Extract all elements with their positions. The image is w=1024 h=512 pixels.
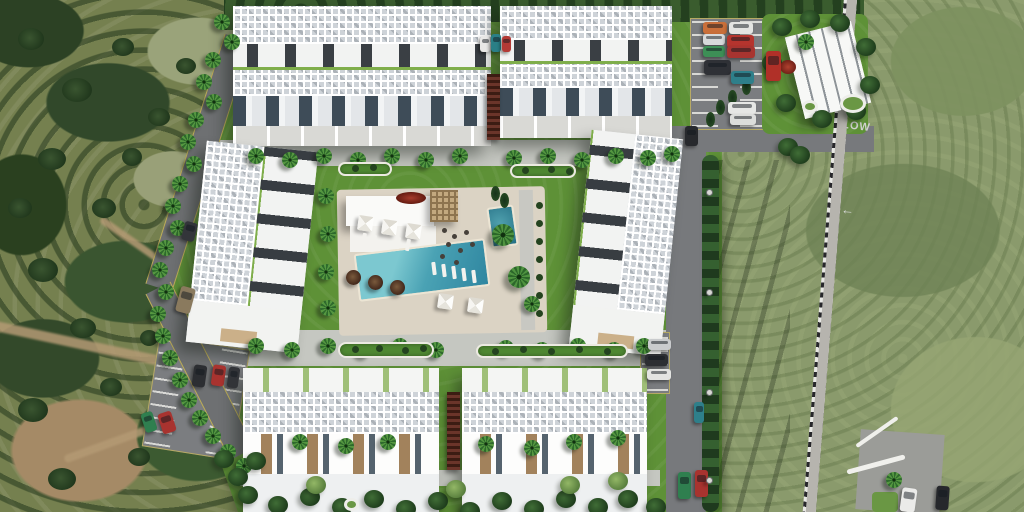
tree — [776, 94, 796, 112]
car — [480, 36, 490, 52]
building-west-block — [186, 141, 319, 354]
tree — [860, 76, 880, 94]
palm — [640, 150, 656, 166]
tree — [772, 18, 792, 36]
palm — [150, 306, 166, 322]
palm — [214, 14, 230, 30]
car — [648, 339, 671, 350]
palm — [172, 176, 188, 192]
car — [766, 51, 781, 81]
tree — [646, 498, 666, 512]
palm — [452, 148, 468, 164]
bush — [536, 310, 543, 317]
scrub — [28, 258, 58, 282]
palm — [248, 148, 264, 164]
dot — [442, 228, 447, 233]
bush — [352, 346, 359, 353]
scrub — [92, 198, 116, 218]
roof-pergola-grid — [500, 64, 672, 88]
car — [703, 34, 725, 45]
scrub — [18, 28, 44, 50]
palm — [172, 372, 188, 388]
scrub — [148, 108, 170, 126]
bush — [376, 345, 383, 352]
dot — [470, 242, 475, 247]
umb-sq — [437, 293, 454, 310]
roof-pergola-grid — [243, 392, 439, 434]
lamp — [707, 290, 712, 295]
cypress-hedge — [702, 155, 719, 512]
palm — [610, 430, 626, 446]
palm — [320, 226, 336, 242]
scrub — [8, 198, 32, 218]
car — [731, 71, 754, 84]
dot — [454, 260, 459, 265]
roof-pergola-grid — [462, 392, 647, 434]
umb-rd — [390, 280, 405, 295]
dot — [464, 230, 469, 235]
roof-terraces — [243, 368, 439, 392]
bush — [352, 165, 359, 172]
palm — [188, 112, 204, 128]
dot — [446, 242, 451, 247]
ground-patios — [233, 126, 491, 146]
palm — [165, 198, 181, 214]
tree — [396, 500, 416, 512]
palm — [316, 148, 332, 164]
tree — [618, 490, 638, 508]
scrub — [100, 378, 122, 396]
palm — [566, 434, 582, 450]
palm — [318, 188, 334, 204]
car — [899, 487, 917, 512]
tree — [790, 146, 810, 164]
palm — [574, 152, 590, 168]
palm — [205, 52, 221, 68]
aerial-render-scene: SLOW SLOW ↑ ← ↓ — [0, 0, 1024, 512]
rooftop-terraces — [233, 44, 491, 70]
glass-facade — [233, 96, 491, 126]
palm — [282, 152, 298, 168]
tree — [246, 452, 266, 470]
bush — [536, 256, 543, 263]
scrub — [128, 448, 150, 466]
car — [502, 36, 511, 52]
tree — [228, 468, 248, 486]
bush — [536, 202, 543, 209]
car — [730, 114, 756, 125]
cypress — [716, 100, 725, 115]
car — [728, 102, 756, 114]
tree — [364, 490, 384, 508]
tree — [588, 498, 608, 512]
tree — [856, 38, 876, 56]
arrow-left-icon: ← — [841, 203, 855, 217]
hedge-shadow — [718, 160, 790, 512]
car — [694, 402, 704, 423]
tree — [524, 500, 544, 512]
tree — [830, 14, 850, 32]
whitepot — [802, 100, 818, 113]
car — [703, 22, 727, 34]
car — [647, 369, 671, 380]
tree — [238, 486, 258, 504]
lamp — [707, 478, 712, 483]
palm — [205, 428, 221, 444]
palm — [798, 34, 814, 50]
bush — [522, 167, 529, 174]
bush — [536, 274, 543, 281]
palm — [186, 156, 202, 172]
palm — [192, 410, 208, 426]
dot — [440, 254, 445, 259]
roof-pergola-grid — [233, 6, 491, 44]
palm — [478, 436, 494, 452]
bush — [576, 346, 583, 353]
palm — [664, 146, 680, 162]
scrub — [70, 318, 96, 338]
umb-rd — [346, 270, 361, 285]
bush — [548, 348, 555, 355]
car — [678, 472, 691, 499]
car — [704, 60, 731, 75]
scrub — [176, 58, 196, 74]
pergola — [430, 190, 458, 222]
palm-lg — [492, 224, 514, 246]
umb-sq — [381, 219, 398, 236]
palm — [158, 284, 174, 300]
bush — [604, 348, 611, 355]
louver-feature-tower-south — [447, 392, 460, 470]
car — [703, 46, 725, 57]
palm-lg — [508, 266, 530, 288]
scrub — [112, 38, 134, 56]
palm — [224, 34, 240, 50]
tree-light — [446, 480, 466, 498]
tree — [214, 450, 234, 468]
palm — [320, 300, 336, 316]
scrub — [62, 78, 92, 102]
bougainvillea — [396, 192, 426, 204]
palm — [886, 472, 902, 488]
planter — [338, 162, 392, 176]
palm — [180, 134, 196, 150]
car — [491, 34, 501, 52]
roof-pergola-grid — [233, 70, 491, 96]
palm — [540, 148, 556, 164]
car — [695, 470, 708, 497]
car — [645, 354, 668, 366]
dot — [452, 234, 457, 239]
bush — [370, 164, 377, 171]
bush — [548, 166, 555, 173]
bush — [492, 348, 499, 355]
tree — [800, 10, 820, 28]
scrub — [48, 468, 76, 490]
palm — [292, 434, 308, 450]
bush — [536, 238, 543, 245]
bush — [520, 346, 527, 353]
tree-light — [306, 476, 326, 494]
palm — [380, 434, 396, 450]
palm — [152, 262, 168, 278]
palm — [320, 338, 336, 354]
palm — [338, 438, 354, 454]
rooftop-terraces — [500, 40, 672, 64]
umb-sq — [357, 215, 374, 232]
palm — [418, 152, 434, 168]
palm — [284, 342, 300, 358]
roof-terraces — [462, 368, 647, 392]
lamp — [707, 190, 712, 195]
bush — [536, 292, 543, 299]
palm — [155, 328, 171, 344]
scrub — [18, 398, 48, 422]
bush — [566, 168, 573, 175]
palm — [248, 338, 264, 354]
redtree — [780, 60, 796, 74]
palm — [318, 264, 334, 280]
whitepot — [840, 94, 866, 113]
glass-facade — [500, 88, 672, 116]
car — [935, 486, 950, 511]
tree — [812, 110, 832, 128]
palm — [524, 440, 540, 456]
bush — [536, 220, 543, 227]
car — [685, 126, 698, 146]
roof-pergola-grid — [500, 6, 672, 40]
louver-feature-tower-north — [487, 74, 500, 140]
tree — [492, 492, 512, 510]
bush — [420, 345, 427, 352]
car — [727, 46, 755, 58]
palm — [162, 350, 178, 366]
lamp — [707, 390, 712, 395]
palm — [181, 392, 197, 408]
scrub — [122, 148, 142, 166]
palm — [206, 94, 222, 110]
scrub — [38, 148, 66, 170]
cypress — [491, 186, 500, 201]
building-north-west — [233, 6, 491, 146]
palm — [158, 240, 174, 256]
palm — [196, 74, 212, 90]
whitepot — [344, 498, 359, 511]
tree — [268, 496, 288, 512]
cypress — [706, 112, 715, 127]
tree-light — [608, 472, 628, 490]
cypress — [500, 193, 509, 208]
car — [729, 22, 753, 34]
umb-sq — [467, 297, 484, 314]
umb-sq — [405, 223, 422, 240]
tree — [428, 492, 448, 510]
tree-light — [560, 476, 580, 494]
bush — [402, 347, 409, 354]
building-north-east — [500, 6, 672, 138]
palm — [608, 148, 624, 164]
umb-rd — [368, 275, 383, 290]
dot — [458, 248, 463, 253]
